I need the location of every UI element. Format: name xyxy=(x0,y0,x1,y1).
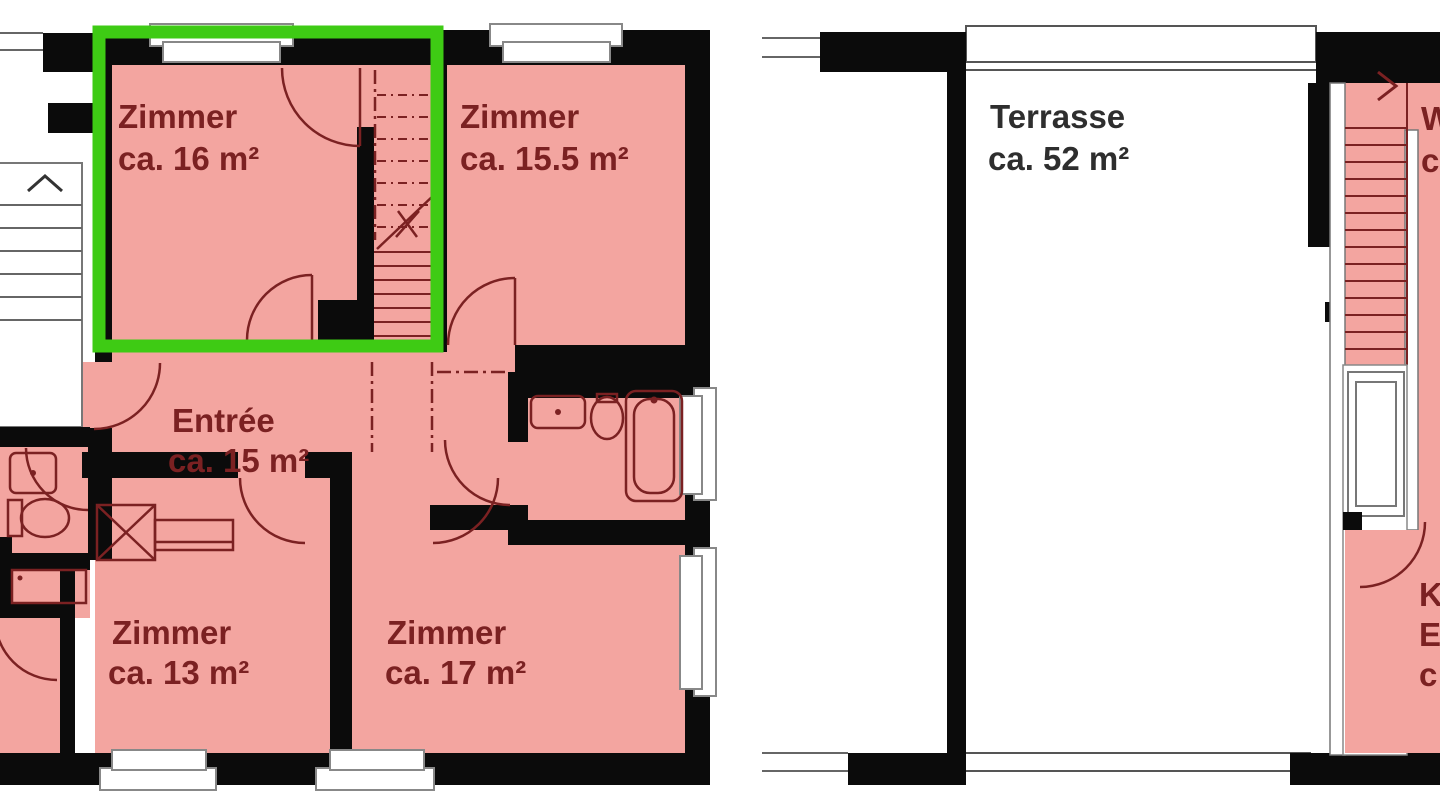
right-plan: Terrasse ca. 52 m² W c K E c xyxy=(762,26,1440,785)
room-label-entree: Entrée xyxy=(172,402,275,439)
wall-z13-z17 xyxy=(330,452,352,785)
wall-top-left xyxy=(820,32,966,72)
wall-terrace-left xyxy=(947,32,966,762)
partial-label-w: W xyxy=(1421,100,1440,137)
wall-stair-foot xyxy=(318,300,374,342)
partial-label-c-bottom: c xyxy=(1419,656,1437,693)
wall-shower-bottom xyxy=(0,603,62,618)
window-z17-bottom-inner xyxy=(330,750,424,770)
stairwell-outline xyxy=(0,163,82,427)
room-area-entree: ca. 15 m² xyxy=(168,442,309,479)
wall-top-right xyxy=(1316,32,1440,83)
wall-bottom-left-stub xyxy=(848,753,966,785)
wall-stair-divider xyxy=(357,127,374,317)
room-label-terrasse: Terrasse xyxy=(990,98,1125,135)
partial-label-e: E xyxy=(1419,616,1440,653)
room-label-zimmer16: Zimmer xyxy=(118,98,237,135)
left-plan: Zimmer ca. 16 m² Zimmer ca. 15.5 m² Entr… xyxy=(0,24,716,790)
room-label-zimmer155: Zimmer xyxy=(460,98,579,135)
wall-z155-bottom xyxy=(515,345,710,375)
wall-neighbor-divider xyxy=(60,565,75,785)
room-area-zimmer155: ca. 15.5 m² xyxy=(460,140,629,177)
room-area-terrasse: ca. 52 m² xyxy=(988,140,1129,177)
wall-wc-bottom xyxy=(0,553,90,570)
partial-label-k: K xyxy=(1419,576,1440,613)
wall-left-lower xyxy=(88,428,112,560)
window-zimmer155-inner xyxy=(503,42,610,62)
bathtub-drain xyxy=(651,397,658,404)
wall-topleft-block-b xyxy=(48,103,95,133)
window-z17-right-inner xyxy=(680,556,702,689)
window-z17-bottom-outer xyxy=(316,768,434,790)
room-label-zimmer17: Zimmer xyxy=(387,614,506,651)
terrace-railing-top xyxy=(966,26,1316,62)
bath-sink-drain xyxy=(555,409,561,415)
window-z13-bottom-inner xyxy=(112,750,206,770)
wall-bottom-right xyxy=(1290,753,1440,785)
window-z13-bottom-outer xyxy=(100,768,216,790)
building-stairwell xyxy=(0,33,82,427)
room-area-zimmer16: ca. 16 m² xyxy=(118,140,259,177)
wall-stub-stair xyxy=(1343,512,1362,530)
wall-bath-left-upper xyxy=(508,372,528,442)
wc-sink-drain xyxy=(30,470,36,476)
wall-terrace-right xyxy=(1308,83,1330,247)
wall-z17-top xyxy=(430,505,528,530)
room-label-zimmer13: Zimmer xyxy=(112,614,231,651)
room-area-zimmer13: ca. 13 m² xyxy=(108,654,249,691)
wall-wc-top xyxy=(0,427,90,447)
floor-plan-canvas: Zimmer ca. 16 m² Zimmer ca. 15.5 m² Entr… xyxy=(0,0,1440,810)
terrace xyxy=(762,26,1316,771)
partial-label-c-top: c xyxy=(1421,142,1439,179)
neighbor-room-partial-fill xyxy=(0,618,60,753)
wall-bath-bottom xyxy=(508,520,692,545)
room-area-zimmer17: ca. 17 m² xyxy=(385,654,526,691)
window-bath-inner xyxy=(680,396,702,494)
entrance-opening-fill xyxy=(82,362,112,428)
void-window-inner xyxy=(1356,382,1396,506)
window-zimmer16-inner xyxy=(163,42,280,62)
wall-topleft-block-a xyxy=(43,33,95,72)
shower-drain xyxy=(18,576,23,581)
